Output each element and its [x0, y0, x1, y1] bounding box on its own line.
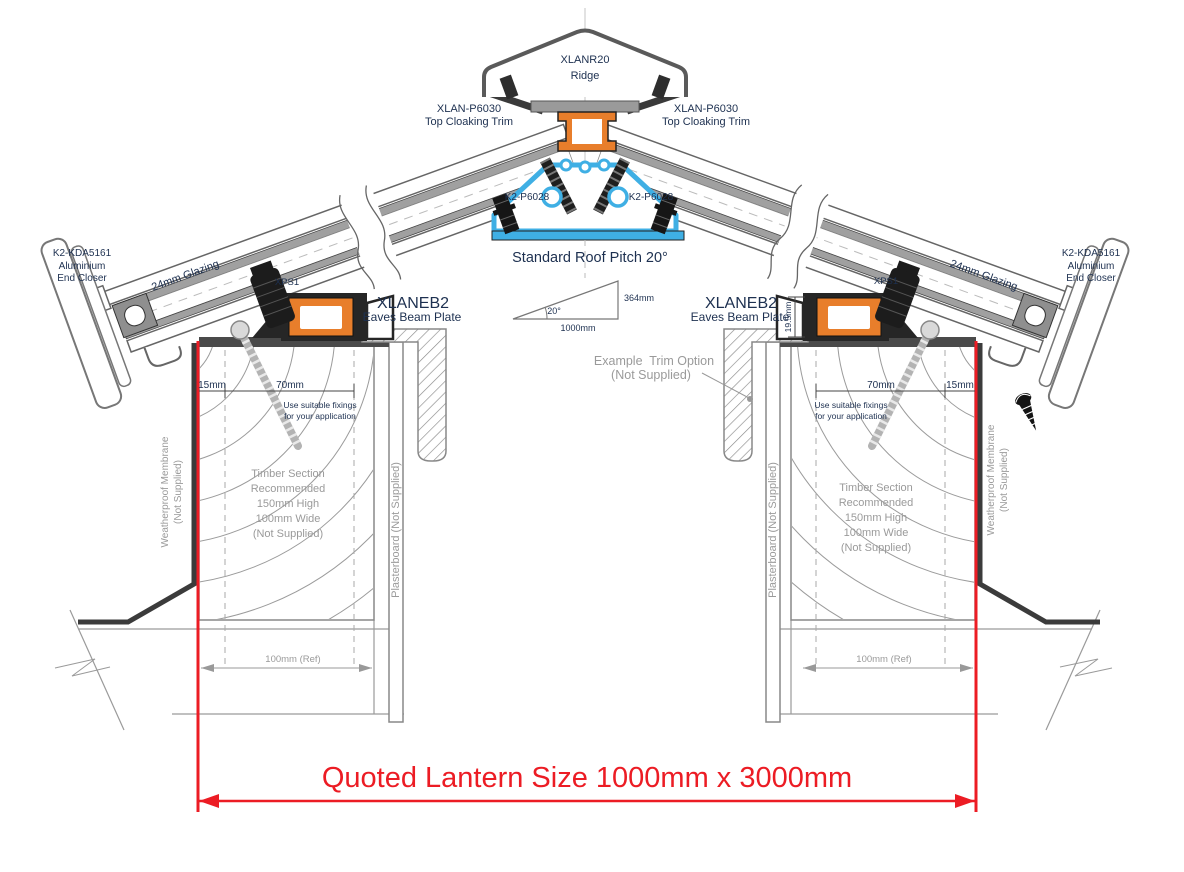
trim-option-label-1: Example Trim Option	[594, 354, 714, 368]
right-membrane-label-1: Weatherproof Membrane	[986, 424, 997, 535]
svg-text:(Not Supplied): (Not Supplied)	[253, 528, 323, 540]
left-kerb-ref-label: 100mm (Ref)	[265, 654, 320, 665]
right-timber-note: Timber Section Recommended 150mm High 10…	[839, 482, 914, 554]
svg-text:Recommended: Recommended	[251, 483, 326, 495]
ridge-name-label: Ridge	[571, 70, 600, 82]
svg-text:Timber Section: Timber Section	[251, 468, 325, 480]
right-eaves-name-label: Eaves Beam Plate	[691, 310, 790, 324]
left-xps1-label: XPS1	[275, 277, 299, 288]
left-cloaking-part-label: XLAN-P6030	[437, 103, 501, 115]
ridge-assembly	[484, 8, 686, 240]
svg-text:150mm High: 150mm High	[845, 512, 907, 524]
right-plasterboard-label: Plasterboard (Not Supplied)	[767, 462, 779, 598]
ridge-part-label: XLANR20	[561, 54, 610, 66]
pitch-note-label: Standard Roof Pitch 20°	[512, 250, 668, 266]
left-fixings-note-2: for your application	[284, 411, 356, 421]
left-end-closer-line2: Aluminium	[59, 261, 106, 272]
left-fixings-note-1: Use suitable fixings	[283, 400, 356, 410]
right-fixings-note-2: for your application	[815, 411, 887, 421]
svg-text:Timber Section: Timber Section	[839, 482, 913, 494]
left-ridge-fixing-label: K2-P6028	[505, 192, 550, 203]
roof-lantern-section-drawing: 24mm Glazing 24mm Glazing	[0, 0, 1184, 872]
pitch-rise-label: 364mm	[624, 293, 654, 303]
trim-option-label-2: (Not Supplied)	[611, 368, 691, 382]
right-dim-zone-label: 70mm	[867, 380, 895, 391]
quoted-size-label: Quoted Lantern Size 1000mm x 3000mm	[322, 762, 852, 794]
right-timber-kerb	[597, 330, 1012, 745]
right-xps1-label: XPS1	[874, 276, 898, 287]
left-eaves-name-label: Eaves Beam Plate	[363, 310, 462, 324]
left-membrane-label-1: Weatherproof Membrane	[160, 436, 171, 547]
right-fixings-note-1: Use suitable fixings	[814, 400, 887, 410]
right-end-closer-part: K2-KDA5161	[1062, 248, 1121, 259]
right-dim-edge-label: 15mm	[946, 380, 974, 391]
left-dim-zone-label: 70mm	[276, 380, 304, 391]
left-end-closer-line3: End Closer	[57, 273, 107, 284]
pitch-base-label: 1000mm	[560, 323, 595, 333]
right-kerb-ref-label: 100mm (Ref)	[856, 654, 911, 665]
right-membrane	[980, 343, 1100, 622]
svg-text:(Not Supplied): (Not Supplied)	[841, 542, 911, 554]
right-end-closer-line3: End Closer	[1066, 273, 1116, 284]
left-cloaking-name-label: Top Cloaking Trim	[425, 116, 513, 128]
quoted-size-arrow	[199, 794, 975, 808]
right-wall-lines	[766, 610, 1112, 730]
svg-text:100mm Wide: 100mm Wide	[256, 513, 321, 525]
left-kerb-ref-dimension	[201, 664, 372, 672]
right-ridge-fixing-label: K2-P6028	[629, 192, 674, 203]
left-end-closer-part: K2-KDA5161	[53, 248, 112, 259]
left-wall-lines	[55, 610, 404, 730]
right-cloaking-name-label: Top Cloaking Trim	[662, 116, 750, 128]
left-membrane-label-2: (Not Supplied)	[173, 460, 184, 524]
screw-icon	[1013, 391, 1045, 434]
pitch-angle-label: 20°	[547, 306, 561, 316]
beam-height-label: 19.5mm	[783, 302, 793, 333]
svg-text:150mm High: 150mm High	[257, 498, 319, 510]
svg-text:100mm Wide: 100mm Wide	[844, 527, 909, 539]
right-membrane-label-2: (Not Supplied)	[999, 448, 1010, 512]
left-dim-edge-label: 15mm	[198, 380, 226, 391]
technical-drawing-page: 24mm Glazing 24mm Glazing	[0, 0, 1184, 872]
left-plasterboard-label: Plasterboard (Not Supplied)	[390, 462, 402, 598]
left-timber-note: Timber Section Recommended 150mm High 10…	[251, 468, 326, 540]
right-kerb-ref-dimension	[803, 664, 973, 672]
right-cloaking-part-label: XLAN-P6030	[674, 103, 738, 115]
right-end-closer-line2: Aluminium	[1068, 261, 1115, 272]
left-timber-kerb	[160, 330, 575, 745]
svg-text:Recommended: Recommended	[839, 497, 914, 509]
